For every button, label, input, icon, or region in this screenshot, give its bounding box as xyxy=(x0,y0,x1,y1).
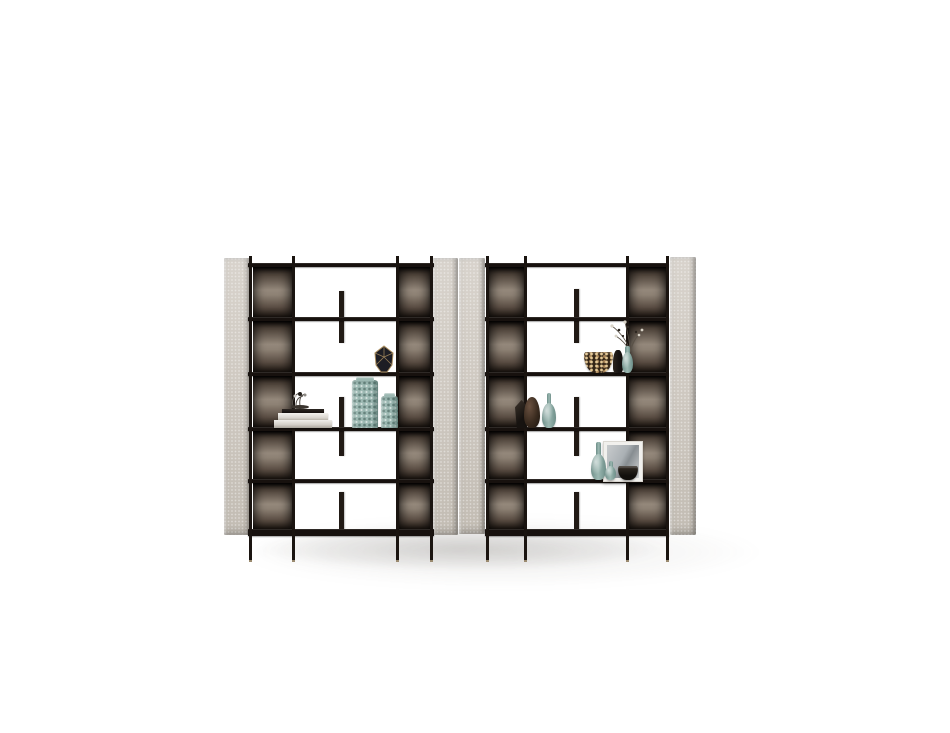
bronze-back-panel xyxy=(253,431,292,479)
bronze-back-panel xyxy=(629,483,666,529)
leg xyxy=(292,536,295,562)
bronze-back-panel xyxy=(489,267,524,317)
floor-shadow xyxy=(205,528,735,592)
divider-fin xyxy=(339,492,344,530)
dried-branches xyxy=(592,318,644,352)
frame-post xyxy=(486,256,489,536)
bronze-back-panel xyxy=(253,321,292,372)
shelf xyxy=(248,317,434,321)
leg xyxy=(666,536,669,562)
leg xyxy=(430,536,433,562)
frame-post xyxy=(524,256,527,536)
brown-gourd-vase xyxy=(524,397,540,428)
bronze-back-panel xyxy=(399,431,430,479)
bronze-back-panel xyxy=(629,267,666,317)
bronze-back-panel xyxy=(399,267,430,317)
bronze-back-panel xyxy=(399,376,430,427)
bottom-shelf xyxy=(485,529,669,536)
teal-bottle-small xyxy=(605,461,616,480)
leg xyxy=(486,536,489,562)
shelf xyxy=(485,427,669,431)
leg xyxy=(524,536,527,562)
teal-textured-vase-short xyxy=(381,396,398,428)
frame-post xyxy=(430,256,433,536)
frame-post xyxy=(626,256,629,536)
divider-fin xyxy=(574,492,579,530)
teal-bottle-tall xyxy=(591,442,606,480)
right-unit-right-side-panel xyxy=(670,257,696,535)
frame-post xyxy=(666,256,669,536)
bronze-back-panel xyxy=(399,321,430,372)
book xyxy=(274,420,332,428)
left-unit-left-side-panel xyxy=(224,258,250,535)
divider-fin xyxy=(574,289,579,343)
bronze-back-panel xyxy=(253,483,292,529)
bottom-shelf xyxy=(248,529,434,536)
right-unit-left-side-panel xyxy=(459,258,485,534)
frame-post xyxy=(249,256,252,536)
teal-textured-vase-tall xyxy=(352,380,378,428)
bronze-back-panel xyxy=(253,267,292,317)
leg xyxy=(249,536,252,562)
studio-scene xyxy=(0,0,950,733)
ornament-on-books xyxy=(287,390,313,409)
left-unit-right-side-panel xyxy=(433,258,458,535)
faceted-gold-vase xyxy=(372,345,396,373)
shelf xyxy=(485,263,669,267)
bronze-back-panel xyxy=(399,483,430,529)
shelf xyxy=(248,479,434,483)
leg xyxy=(626,536,629,562)
bronze-back-panel xyxy=(489,321,524,372)
bronze-back-panel xyxy=(489,431,524,479)
bronze-back-panel xyxy=(629,376,666,427)
leopard-print-bowl xyxy=(584,352,613,373)
teal-branch-vase xyxy=(622,346,633,373)
book-stack xyxy=(274,390,332,428)
shelf xyxy=(248,263,434,267)
shelf xyxy=(485,372,669,376)
bronze-back-panel xyxy=(489,483,524,529)
leg xyxy=(396,536,399,562)
shelf xyxy=(248,372,434,376)
teal-glass-bottle xyxy=(542,393,556,428)
book xyxy=(278,413,328,420)
